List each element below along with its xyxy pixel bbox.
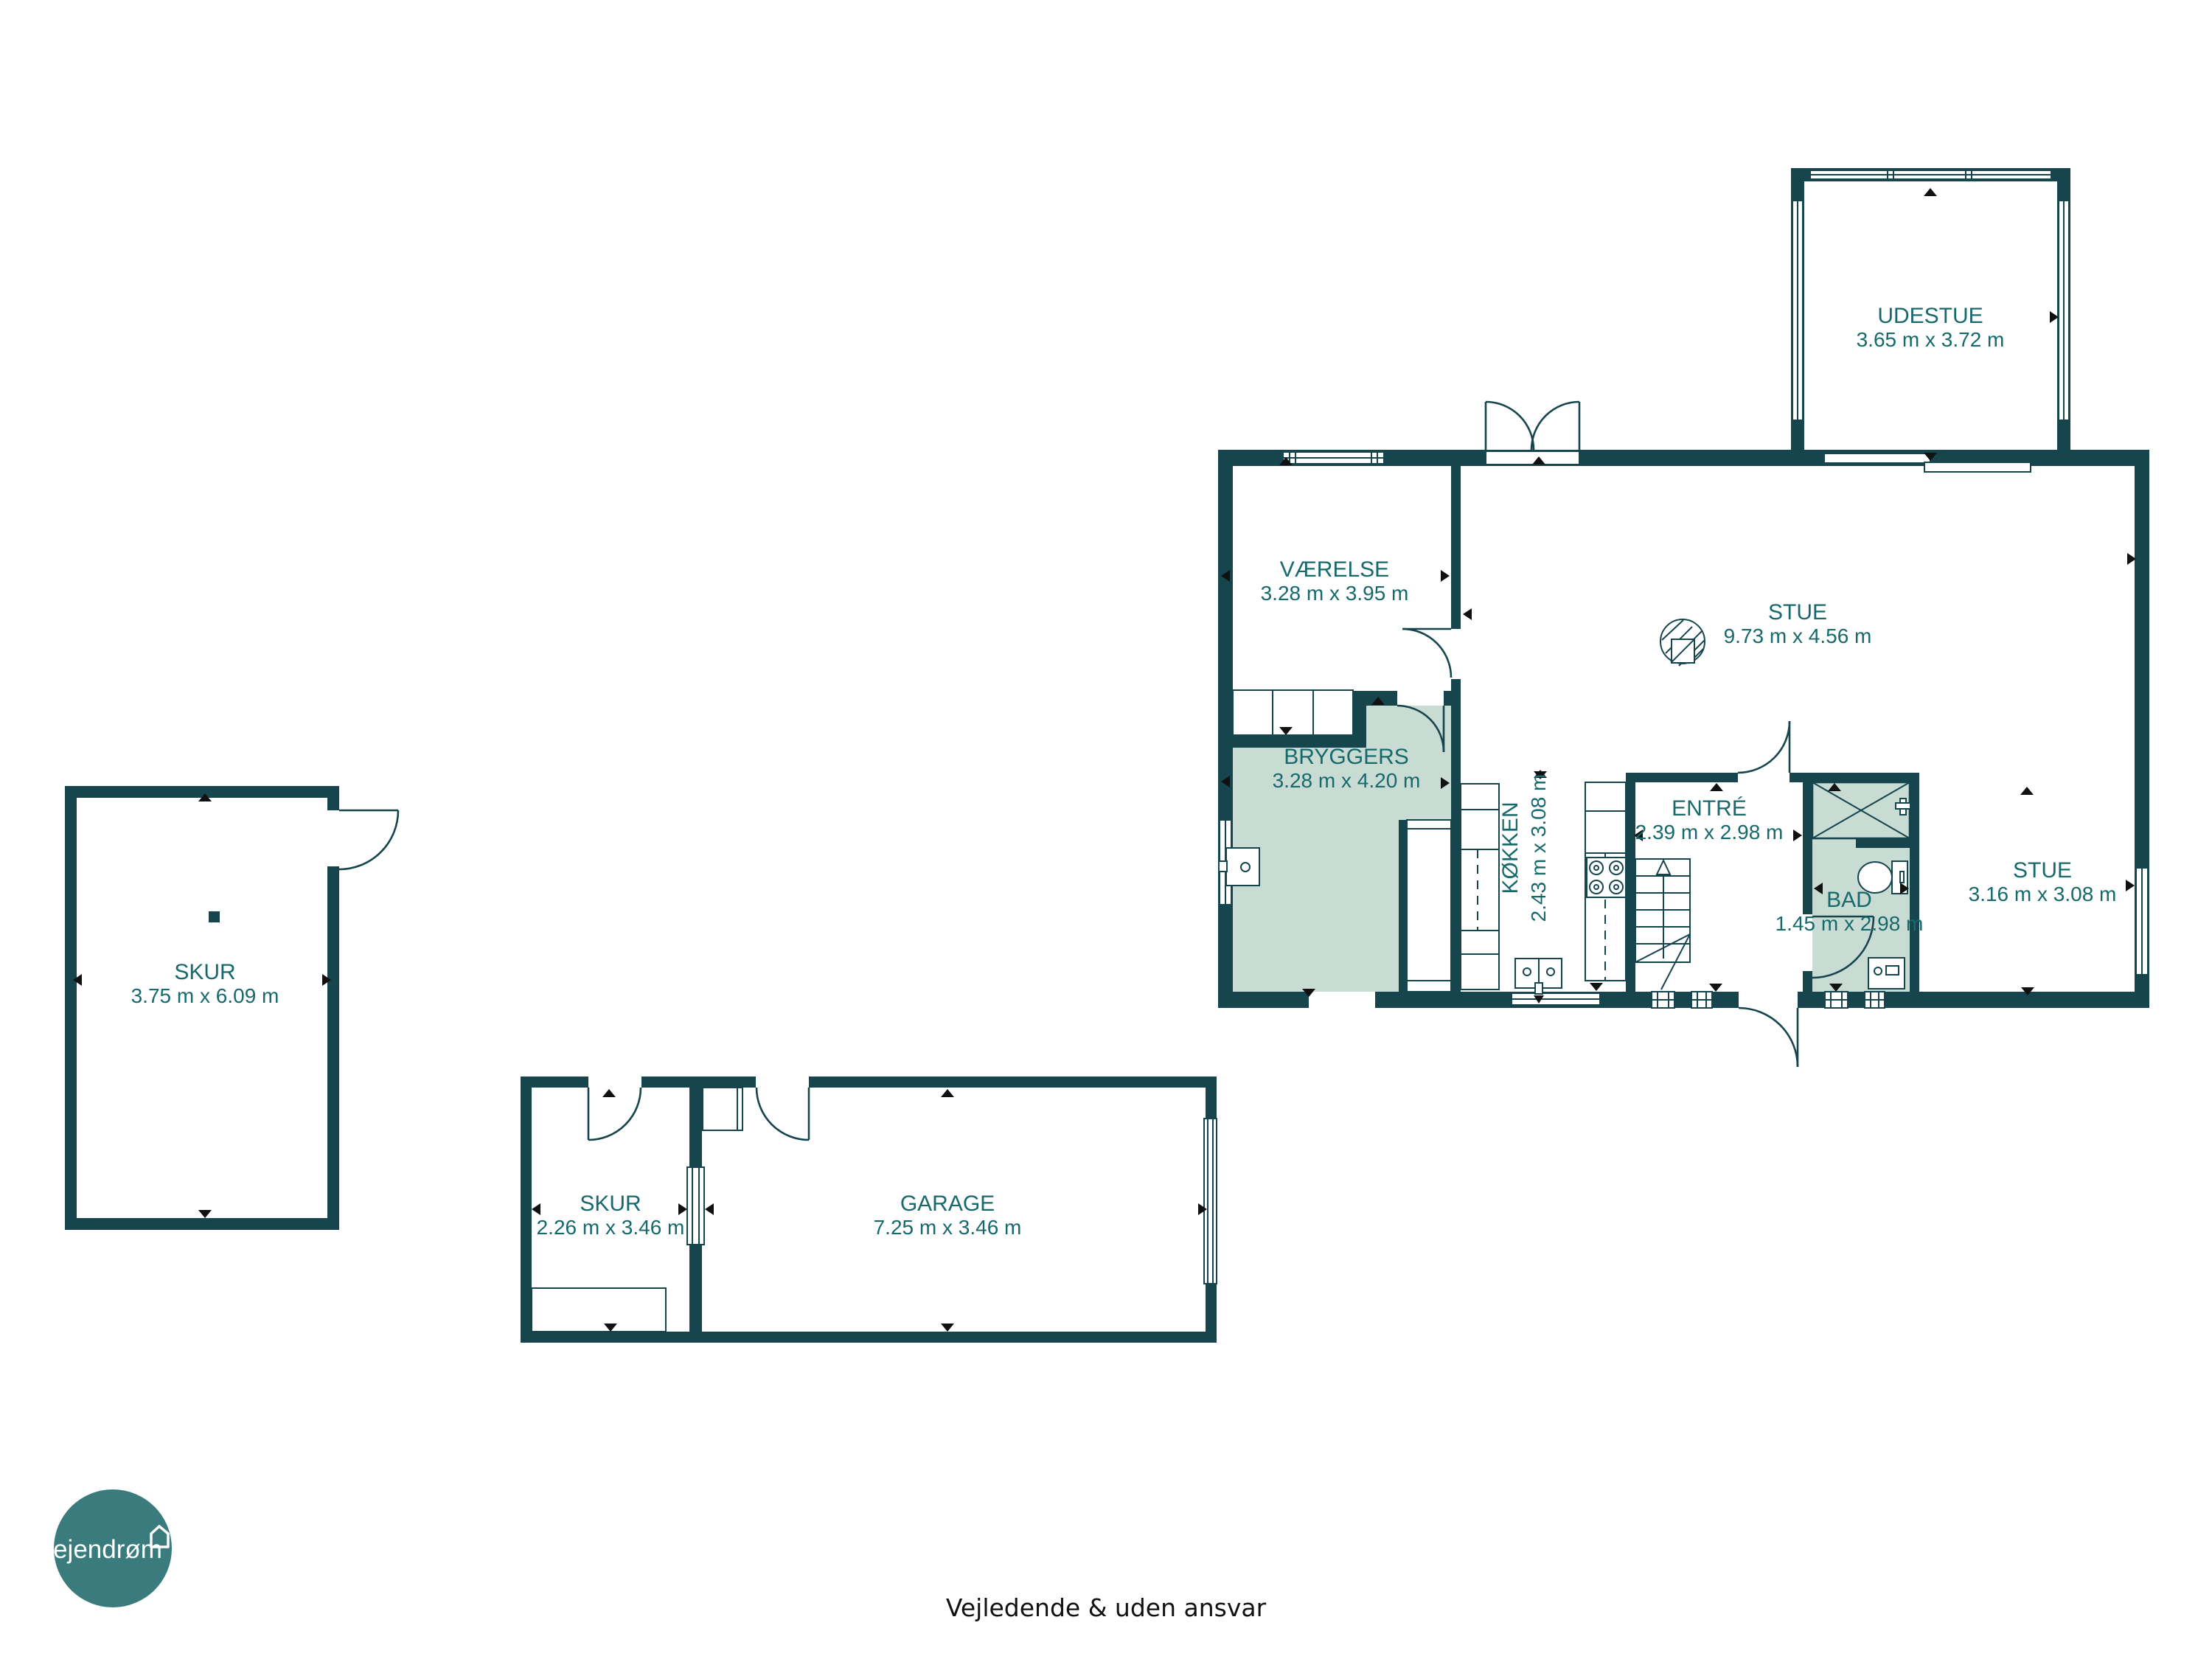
- floorplan-canvas: UDESTUE 3.65 m x 3.72 m VÆRELSE 3.28 m x…: [0, 0, 2212, 1659]
- window: [2136, 868, 2148, 975]
- window: [1512, 993, 1600, 1005]
- room-dims-bryggers: 3.28 m x 4.20 m: [1273, 769, 1421, 792]
- brand-logo: ejendrøm: [53, 1489, 172, 1607]
- front-door: [1739, 1008, 1798, 1067]
- shower-icon: [1812, 782, 1910, 838]
- cabinet: [703, 1088, 742, 1130]
- workbench: [532, 1288, 666, 1332]
- room-label-stue2: STUE: [2013, 858, 2072, 883]
- room-label-garage: GARAGE: [900, 1192, 995, 1216]
- fireplace-icon: [1660, 619, 1705, 666]
- window: [1865, 992, 1885, 1008]
- room-label-koekken: KØKKEN: [1498, 801, 1523, 894]
- room-dims-stue: 9.73 m x 4.56 m: [1724, 625, 1872, 647]
- door: [1738, 721, 1790, 773]
- disclaimer-text: Vejledende & uden ansvar: [946, 1593, 1267, 1622]
- room-label-skur1: SKUR: [174, 960, 235, 984]
- room-dims-garage: 7.25 m x 3.46 m: [874, 1216, 1022, 1239]
- room-dims-entre: 2.39 m x 2.98 m: [1635, 821, 1784, 844]
- wall-markers: [73, 188, 2136, 1332]
- stove-icon: [1587, 858, 1626, 897]
- room-label-bryggers: BRYGGERS: [1284, 745, 1409, 769]
- kitchen-counter-left: [1461, 784, 1499, 990]
- window: [2059, 201, 2069, 420]
- room-label-skur2: SKUR: [580, 1192, 641, 1216]
- room-dims-skur2: 2.26 m x 3.46 m: [537, 1216, 685, 1239]
- room-label-udestue: UDESTUE: [1877, 304, 1983, 328]
- post: [209, 911, 220, 922]
- closet-niche: [1407, 820, 1451, 992]
- stairs: [1635, 859, 1690, 990]
- wardrobe: [1233, 690, 1353, 735]
- room-dims-bad: 1.45 m x 2.98 m: [1775, 912, 1924, 935]
- floorplan-page: UDESTUE 3.65 m x 3.72 m VÆRELSE 3.28 m x…: [0, 0, 2212, 1659]
- window: [1792, 201, 1803, 420]
- room-dims-skur1: 3.75 m x 6.09 m: [131, 984, 279, 1007]
- room-label-stue: STUE: [1768, 600, 1827, 625]
- door: [339, 810, 398, 869]
- window: [1691, 992, 1712, 1008]
- room-dims-stue2: 3.16 m x 3.08 m: [1969, 883, 2117, 905]
- window: [1204, 1119, 1217, 1284]
- window: [1825, 992, 1848, 1008]
- logo-text: ejendrøm: [53, 1535, 162, 1564]
- room-label-bad: BAD: [1826, 888, 1872, 912]
- room-dims-udestue: 3.65 m x 3.72 m: [1857, 328, 2005, 351]
- door: [588, 1088, 641, 1140]
- window: [687, 1167, 704, 1245]
- room-label-vaerelse: VÆRELSE: [1280, 557, 1389, 582]
- shed-left: [65, 786, 398, 1230]
- bath-sink-icon: [1868, 958, 1905, 989]
- door: [757, 1088, 809, 1140]
- window: [1283, 452, 1384, 464]
- room-label-entre: ENTRÉ: [1672, 796, 1747, 821]
- door: [1402, 629, 1451, 678]
- room-labels: UDESTUE 3.65 m x 3.72 m VÆRELSE 3.28 m x…: [131, 304, 2117, 1239]
- main-house: [1218, 402, 2149, 1067]
- room-dims-vaerelse: 3.28 m x 3.95 m: [1261, 582, 1409, 605]
- window: [1652, 992, 1674, 1008]
- double-door: [1486, 402, 1579, 465]
- room-dims-koekken: 2.43 m x 3.08 m: [1527, 774, 1550, 922]
- window: [1810, 170, 2051, 179]
